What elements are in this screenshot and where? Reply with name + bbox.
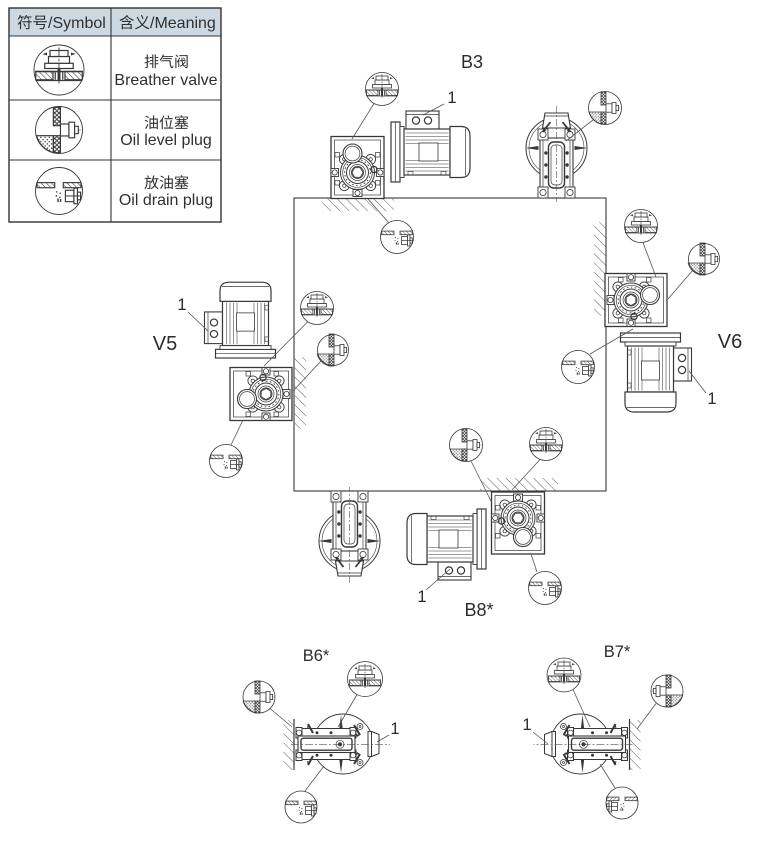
svg-text:Oil drain plug: Oil drain plug bbox=[119, 192, 213, 209]
svg-text:B7*: B7* bbox=[604, 643, 631, 661]
svg-text:B6*: B6* bbox=[303, 647, 330, 665]
svg-text:1: 1 bbox=[417, 588, 426, 606]
svg-text:B3: B3 bbox=[461, 52, 483, 72]
svg-text:Breather valve: Breather valve bbox=[114, 72, 217, 89]
svg-text:V6: V6 bbox=[718, 331, 742, 353]
svg-text:Oil level plug: Oil level plug bbox=[120, 132, 212, 149]
svg-text:1: 1 bbox=[447, 89, 456, 107]
svg-text:/Symbol: /Symbol bbox=[48, 15, 106, 32]
svg-text:1: 1 bbox=[390, 720, 399, 738]
svg-text:1: 1 bbox=[707, 390, 716, 408]
svg-text:/Meaning: /Meaning bbox=[150, 15, 216, 32]
svg-text:1: 1 bbox=[522, 716, 531, 734]
svg-text:V5: V5 bbox=[153, 333, 177, 355]
svg-text:B8*: B8* bbox=[464, 600, 493, 620]
svg-text:1: 1 bbox=[177, 296, 186, 314]
